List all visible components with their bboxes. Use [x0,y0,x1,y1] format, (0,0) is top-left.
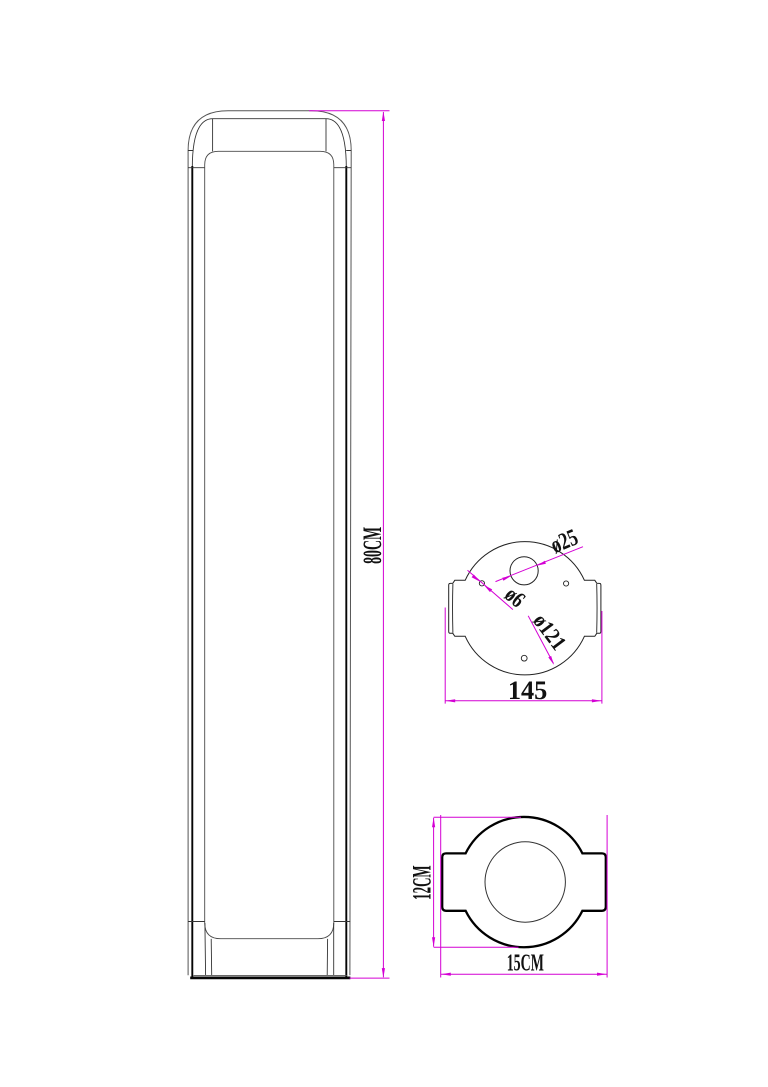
svg-text:145: 145 [508,676,548,705]
svg-text:15CM: 15CM [507,950,544,976]
svg-text:ø121: ø121 [528,609,571,655]
svg-text:12CM: 12CM [407,865,436,900]
svg-text:ø25: ø25 [547,525,582,559]
svg-text:80CM: 80CM [357,527,387,564]
svg-text:ø6: ø6 [500,582,530,613]
